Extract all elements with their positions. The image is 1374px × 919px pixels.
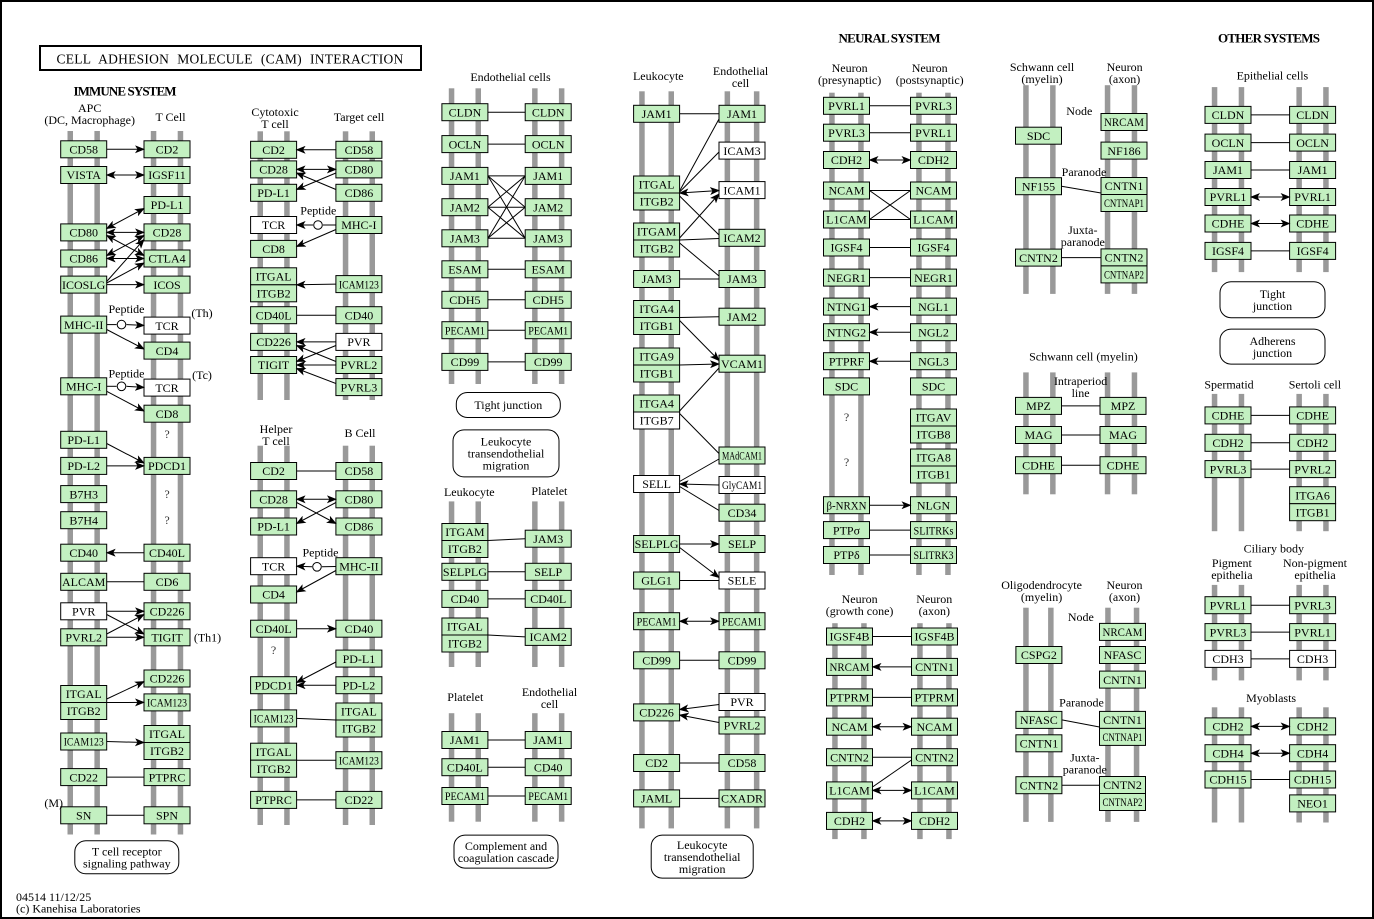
svg-text:CDH2: CDH2 [831, 153, 862, 167]
svg-text:ITGB1: ITGB1 [640, 367, 674, 381]
svg-text:(Th1): (Th1) [194, 631, 221, 645]
svg-text:CDH2: CDH2 [834, 814, 865, 828]
svg-text:CNTN2: CNTN2 [830, 750, 869, 764]
svg-text:PECAM1: PECAM1 [445, 789, 485, 803]
svg-text:ITGB1: ITGB1 [917, 468, 951, 482]
svg-text:Paranode: Paranode [1062, 165, 1107, 179]
svg-text:ITGAL: ITGAL [341, 705, 377, 719]
svg-text:NLGN: NLGN [917, 498, 951, 512]
svg-text:PVR: PVR [347, 335, 370, 349]
svg-text:ITGB2: ITGB2 [257, 762, 291, 776]
svg-text:ALCAM: ALCAM [62, 575, 106, 589]
svg-text:JAM1: JAM1 [450, 169, 480, 183]
svg-text:T cell: T cell [261, 117, 289, 131]
svg-text:paranode: paranode [1061, 235, 1105, 249]
svg-text:CNTN1: CNTN1 [1020, 737, 1059, 751]
svg-text:CD2: CD2 [156, 143, 179, 157]
svg-text:L1CAM: L1CAM [829, 784, 870, 798]
svg-text:Peptide: Peptide [109, 367, 145, 381]
svg-text:PECAM1: PECAM1 [528, 323, 568, 337]
svg-text:CD22: CD22 [69, 770, 98, 784]
svg-text:ITGB2: ITGB2 [640, 242, 674, 256]
svg-text:JAM1: JAM1 [450, 733, 480, 747]
svg-text:CNTN2: CNTN2 [1019, 251, 1058, 265]
svg-text:CNTN2: CNTN2 [915, 750, 954, 764]
svg-text:CD99: CD99 [642, 654, 671, 668]
svg-text:JAM1: JAM1 [642, 107, 672, 121]
svg-text:CDH2: CDH2 [1297, 720, 1328, 734]
svg-text:CDH4: CDH4 [1297, 746, 1328, 760]
svg-text:ITGA4: ITGA4 [639, 397, 674, 411]
svg-text:TIGIT: TIGIT [151, 631, 183, 645]
svg-text:(myelin): (myelin) [1021, 72, 1062, 86]
svg-text:ITGB8: ITGB8 [917, 428, 951, 442]
svg-text:(growth cone): (growth cone) [826, 604, 894, 618]
svg-text:CDH5: CDH5 [449, 293, 480, 307]
svg-text:PD-L1: PD-L1 [67, 433, 100, 447]
svg-text:CDH2: CDH2 [919, 814, 950, 828]
svg-text:SPN: SPN [156, 809, 178, 823]
svg-text:CDH5: CDH5 [533, 293, 564, 307]
svg-text:NRCAM: NRCAM [1104, 115, 1144, 129]
svg-text:CD86: CD86 [69, 252, 98, 266]
svg-text:ITGB2: ITGB2 [640, 195, 674, 209]
svg-text:CNTN2: CNTN2 [1020, 778, 1059, 792]
svg-text:CDH15: CDH15 [1209, 773, 1246, 787]
svg-text:NCAM: NCAM [915, 184, 951, 198]
svg-text:CD58: CD58 [69, 143, 98, 157]
svg-text:PVRL1: PVRL1 [1294, 625, 1331, 639]
svg-text:B7H4: B7H4 [69, 513, 98, 527]
svg-text:Node: Node [1068, 610, 1094, 624]
svg-text:CD80: CD80 [69, 226, 98, 240]
svg-text:CNTN1: CNTN1 [915, 660, 954, 674]
svg-text:ICOSLG: ICOSLG [62, 278, 106, 292]
svg-text:NTNG2: NTNG2 [827, 325, 866, 339]
svg-text:Platelet: Platelet [447, 690, 484, 704]
svg-text:CNTNAP2: CNTNAP2 [1103, 795, 1143, 809]
svg-text:JAM2: JAM2 [533, 200, 563, 214]
svg-text:PVRL2: PVRL2 [65, 631, 102, 645]
svg-text:CD40L: CD40L [149, 546, 185, 560]
svg-text:(axon): (axon) [1109, 590, 1140, 604]
svg-text:SDC: SDC [922, 380, 945, 394]
svg-text:L1CAM: L1CAM [826, 213, 867, 227]
svg-text:PTPσ: PTPσ [833, 523, 861, 537]
svg-text:NRCAM: NRCAM [1103, 625, 1143, 639]
svg-text:CD86: CD86 [345, 186, 374, 200]
svg-text:JAML: JAML [641, 792, 672, 806]
svg-text:NF155: NF155 [1022, 179, 1055, 193]
svg-text:IGSF4B: IGSF4B [915, 630, 955, 644]
svg-text:ITGAL: ITGAL [447, 620, 483, 634]
svg-text:L1CAM: L1CAM [913, 213, 954, 227]
svg-text:ICAM1: ICAM1 [723, 183, 760, 197]
svg-text:JAM3: JAM3 [727, 272, 757, 286]
svg-text:(c) Kanehisa Laboratories: (c) Kanehisa Laboratories [16, 902, 141, 916]
svg-text:?: ? [844, 455, 849, 469]
svg-text:CD86: CD86 [345, 520, 374, 534]
svg-text:NCAM: NCAM [831, 720, 867, 734]
svg-text:SLITRK3: SLITRK3 [914, 548, 954, 562]
svg-text:cell: cell [541, 697, 559, 711]
svg-text:CDH4: CDH4 [1212, 746, 1243, 760]
svg-text:SELP: SELP [534, 565, 562, 579]
svg-text:coagulation cascade: coagulation cascade [458, 851, 554, 865]
svg-text:TCR: TCR [155, 319, 178, 333]
svg-text:Platelet: Platelet [531, 484, 568, 498]
svg-text:CD40: CD40 [69, 546, 98, 560]
svg-text:OTHER SYSTEMS: OTHER SYSTEMS [1218, 31, 1320, 46]
svg-text:PVRL1: PVRL1 [915, 126, 952, 140]
svg-text:PVRL2: PVRL2 [341, 358, 378, 372]
svg-text:migration: migration [679, 862, 726, 876]
svg-text:CD6: CD6 [156, 575, 179, 589]
svg-text:(M): (M) [44, 796, 63, 810]
svg-text:PTPRM: PTPRM [830, 691, 870, 705]
svg-text:junction: junction [1252, 299, 1292, 313]
svg-text:ICAM123: ICAM123 [147, 696, 187, 710]
svg-text:Endothelial cells: Endothelial cells [470, 70, 551, 84]
svg-text:SDC: SDC [835, 380, 858, 394]
svg-text:PD-L1: PD-L1 [257, 186, 290, 200]
svg-text:ITGAL: ITGAL [256, 270, 292, 284]
svg-text:?: ? [164, 487, 169, 501]
svg-text:NEO1: NEO1 [1297, 797, 1328, 811]
svg-text:CD226: CD226 [256, 335, 291, 349]
svg-text:CD2: CD2 [645, 756, 668, 770]
svg-text:TCR: TCR [262, 559, 285, 573]
svg-text:PVRL3: PVRL3 [915, 99, 952, 113]
svg-text:SELPLG: SELPLG [635, 537, 679, 551]
svg-text:PVRL3: PVRL3 [341, 380, 378, 394]
svg-text:CD28: CD28 [153, 226, 182, 240]
svg-text:Leukocyte: Leukocyte [633, 69, 684, 83]
svg-text:NGL1: NGL1 [918, 300, 949, 314]
svg-text:CDH2: CDH2 [1297, 436, 1328, 450]
svg-text:Spermatid: Spermatid [1204, 378, 1253, 392]
svg-text:PVRL2: PVRL2 [1294, 462, 1331, 476]
svg-text:CD40L: CD40L [530, 592, 566, 606]
svg-text:CD40: CD40 [451, 592, 480, 606]
svg-text:(axon): (axon) [1109, 72, 1140, 86]
svg-text:NCAM: NCAM [828, 184, 864, 198]
svg-text:PVRL3: PVRL3 [1294, 598, 1331, 612]
svg-text:epithelia: epithelia [1211, 568, 1253, 582]
svg-text:NCAM: NCAM [916, 720, 952, 734]
svg-text:(axon): (axon) [919, 604, 950, 618]
svg-text:PVRL3: PVRL3 [828, 126, 865, 140]
svg-text:CNTNAP2: CNTNAP2 [1104, 268, 1144, 282]
svg-text:JAM3: JAM3 [450, 232, 480, 246]
svg-text:ESAM: ESAM [448, 263, 482, 277]
svg-text:Target cell: Target cell [334, 110, 385, 124]
svg-text:ICAM2: ICAM2 [723, 231, 760, 245]
svg-text:CD40: CD40 [345, 308, 374, 322]
svg-text:NEURAL SYSTEM: NEURAL SYSTEM [839, 31, 941, 46]
svg-text:(myelin): (myelin) [1021, 590, 1062, 604]
svg-text:CD40L: CD40L [256, 308, 292, 322]
svg-text:CDH3: CDH3 [1212, 652, 1243, 666]
svg-text:CD80: CD80 [345, 493, 374, 507]
svg-text:SDC: SDC [1027, 129, 1050, 143]
svg-text:GLG1: GLG1 [641, 574, 672, 588]
svg-text:CD99: CD99 [534, 355, 563, 369]
svg-text:CDHE: CDHE [1212, 409, 1245, 423]
svg-text:Peptide: Peptide [303, 545, 339, 559]
svg-text:CD22: CD22 [345, 793, 374, 807]
svg-text:(postsynaptic): (postsynaptic) [896, 73, 964, 87]
svg-text:OCLN: OCLN [1212, 136, 1245, 150]
svg-text:CNTNAP1: CNTNAP1 [1103, 730, 1143, 744]
svg-text:CXADR: CXADR [721, 792, 763, 806]
svg-text:Ciliary body: Ciliary body [1244, 542, 1304, 556]
svg-text:PVRL1: PVRL1 [1210, 598, 1247, 612]
svg-text:PD-L1: PD-L1 [257, 520, 290, 534]
svg-text:CDH2: CDH2 [1212, 720, 1243, 734]
svg-text:CLDN: CLDN [449, 105, 482, 119]
svg-text:CD226: CD226 [150, 672, 185, 686]
svg-text:IGSF4: IGSF4 [1212, 244, 1244, 258]
svg-text:CD226: CD226 [150, 605, 185, 619]
svg-text:CD2: CD2 [262, 143, 285, 157]
svg-text:CDHE: CDHE [1296, 409, 1329, 423]
svg-text:CNTNAP1: CNTNAP1 [1104, 196, 1144, 210]
svg-text:CNTN1: CNTN1 [1103, 713, 1142, 727]
svg-text:Sertoli cell: Sertoli cell [1289, 378, 1342, 392]
svg-text:IGSF4: IGSF4 [830, 241, 862, 255]
svg-text:PECAM1: PECAM1 [722, 614, 762, 628]
svg-text:ITGAL: ITGAL [256, 745, 292, 759]
svg-text:ICAM3: ICAM3 [723, 144, 760, 158]
svg-text:ITGA4: ITGA4 [639, 302, 674, 316]
svg-text:OCLN: OCLN [449, 137, 482, 151]
svg-text:PTPRC: PTPRC [149, 770, 186, 784]
svg-text:PECAM1: PECAM1 [445, 323, 485, 337]
svg-text:ITGB7: ITGB7 [640, 414, 674, 428]
svg-text:PD-L1: PD-L1 [151, 198, 184, 212]
svg-text:CDHE: CDHE [1107, 458, 1140, 472]
svg-text:SELL: SELL [642, 477, 671, 491]
svg-text:PTPRF: PTPRF [829, 354, 865, 368]
svg-text:L1CAM: L1CAM [914, 784, 955, 798]
svg-text:ITGAL: ITGAL [639, 178, 675, 192]
svg-text:IGSF4: IGSF4 [917, 241, 949, 255]
svg-text:PTPRM: PTPRM [915, 691, 955, 705]
svg-text:JAM1: JAM1 [533, 733, 563, 747]
svg-text:line: line [1072, 386, 1090, 400]
svg-text:JAM3: JAM3 [533, 232, 563, 246]
svg-text:PD-L1: PD-L1 [343, 652, 376, 666]
svg-text:IGSF11: IGSF11 [148, 168, 186, 182]
svg-text:CD58: CD58 [345, 143, 374, 157]
svg-text:CD99: CD99 [451, 355, 480, 369]
svg-text:PECAM1: PECAM1 [528, 789, 568, 803]
svg-text:PVRL3: PVRL3 [1210, 625, 1247, 639]
svg-text:ITGAM: ITGAM [445, 525, 485, 539]
svg-text:ICOS: ICOS [153, 278, 180, 292]
svg-text:IGSF4B: IGSF4B [830, 630, 870, 644]
svg-text:β-NRXN: β-NRXN [827, 498, 867, 512]
svg-text:ICAM2: ICAM2 [530, 630, 567, 644]
svg-text:JAM2: JAM2 [727, 310, 757, 324]
svg-text:?: ? [164, 513, 169, 527]
svg-text:OCLN: OCLN [1296, 136, 1329, 150]
svg-text:GlyCAM1: GlyCAM1 [722, 478, 762, 492]
svg-text:PD-L2: PD-L2 [343, 678, 376, 692]
svg-text:CD99: CD99 [728, 654, 757, 668]
svg-text:PVRL3: PVRL3 [1210, 462, 1247, 476]
svg-text:Myoblasts: Myoblasts [1246, 691, 1296, 705]
svg-text:CD80: CD80 [345, 163, 374, 177]
svg-text:NGL2: NGL2 [918, 325, 949, 339]
svg-text:PTPδ: PTPδ [833, 548, 860, 562]
svg-text:CNTN1: CNTN1 [1105, 179, 1144, 193]
svg-text:CDH3: CDH3 [1297, 652, 1328, 666]
svg-text:PTPRC: PTPRC [255, 793, 292, 807]
svg-text:CNTN2: CNTN2 [1105, 251, 1144, 265]
svg-text:CDH15: CDH15 [1294, 773, 1331, 787]
svg-text:CTLA4: CTLA4 [148, 252, 185, 266]
svg-text:PVR: PVR [730, 695, 753, 709]
svg-text:CD8: CD8 [262, 242, 285, 256]
svg-text:MPZ: MPZ [1111, 399, 1136, 413]
svg-text:PVRL1: PVRL1 [1210, 190, 1247, 204]
svg-text:CD40: CD40 [345, 622, 374, 636]
svg-text:CD226: CD226 [639, 706, 674, 720]
svg-text:CD28: CD28 [259, 163, 288, 177]
svg-text:CSPG2: CSPG2 [1021, 648, 1057, 662]
svg-text:?: ? [844, 410, 849, 424]
svg-text:NEGR1: NEGR1 [827, 271, 866, 285]
svg-text:CD4: CD4 [156, 344, 179, 358]
svg-text:Peptide: Peptide [300, 204, 336, 218]
svg-text:(Tc): (Tc) [192, 368, 212, 382]
svg-text:ITGB2: ITGB2 [448, 637, 482, 651]
svg-text:junction: junction [1252, 346, 1292, 360]
svg-text:CDH2: CDH2 [1212, 436, 1243, 450]
svg-text:CD58: CD58 [728, 756, 757, 770]
svg-text:Paranode: Paranode [1059, 696, 1104, 710]
svg-text:CLDN: CLDN [1296, 108, 1329, 122]
svg-text:PD-L2: PD-L2 [67, 459, 100, 473]
svg-text:PDCD1: PDCD1 [255, 678, 293, 692]
svg-text:epithelia: epithelia [1294, 568, 1336, 582]
svg-text:ICAM123: ICAM123 [339, 277, 379, 291]
svg-text:NEGR1: NEGR1 [914, 271, 953, 285]
svg-text:Epithelial cells: Epithelial cells [1237, 69, 1309, 83]
svg-text:MAdCAM1: MAdCAM1 [722, 449, 762, 463]
svg-text:JAM1: JAM1 [533, 169, 563, 183]
svg-text:CD4: CD4 [262, 588, 285, 602]
svg-text:CDH2: CDH2 [918, 153, 949, 167]
svg-text:SELE: SELE [728, 574, 757, 588]
svg-text:cell: cell [732, 76, 750, 90]
svg-text:JAM1: JAM1 [1298, 163, 1328, 177]
svg-text:CD8: CD8 [156, 407, 179, 421]
svg-text:NF186: NF186 [1107, 144, 1140, 158]
svg-text:CD40L: CD40L [447, 760, 483, 774]
svg-text:JAM3: JAM3 [642, 272, 672, 286]
svg-text:ITGA6: ITGA6 [1295, 488, 1330, 502]
svg-text:CLDN: CLDN [532, 105, 565, 119]
svg-text:CD40: CD40 [534, 760, 563, 774]
svg-text:CNTN1: CNTN1 [1103, 673, 1142, 687]
svg-text:CD2: CD2 [262, 464, 285, 478]
svg-text:JAM2: JAM2 [450, 200, 480, 214]
svg-text:PVR: PVR [72, 605, 95, 619]
svg-text:ICAM123: ICAM123 [254, 712, 294, 726]
svg-text:OCLN: OCLN [532, 137, 565, 151]
svg-text:ITGB1: ITGB1 [1296, 505, 1330, 519]
svg-text:SELP: SELP [728, 537, 756, 551]
svg-text:NRCAM: NRCAM [830, 660, 870, 674]
svg-text:PECAM1: PECAM1 [637, 614, 677, 628]
svg-text:ITGB2: ITGB2 [342, 722, 376, 736]
svg-text:SELPLG: SELPLG [443, 565, 487, 579]
svg-text:migration: migration [483, 459, 530, 473]
svg-text:ITGAV: ITGAV [916, 411, 952, 425]
svg-text:ITGB1: ITGB1 [640, 319, 674, 333]
svg-text:CELL ADHESION MOLECULE (CAM: CELL ADHESION MOLECULE (CAM) INTERACTION [57, 52, 404, 67]
svg-text:SN: SN [76, 809, 92, 823]
svg-text:TCR: TCR [155, 381, 178, 395]
svg-text:B Cell: B Cell [344, 426, 376, 440]
svg-text:ITGB2: ITGB2 [67, 704, 101, 718]
svg-text:Peptide: Peptide [109, 302, 145, 316]
svg-text:?: ? [271, 643, 276, 657]
svg-text:ITGA9: ITGA9 [639, 350, 674, 364]
svg-text:ITGAM: ITGAM [637, 225, 677, 239]
svg-text:ITGB2: ITGB2 [257, 287, 291, 301]
svg-text:Tight junction: Tight junction [474, 398, 542, 412]
svg-text:PVRL1: PVRL1 [1294, 190, 1331, 204]
svg-text:signaling pathway: signaling pathway [83, 857, 171, 871]
svg-text:JAM1: JAM1 [1213, 163, 1243, 177]
svg-text:Node: Node [1066, 104, 1092, 118]
svg-text:SLITRKs: SLITRKs [914, 523, 954, 537]
svg-text:ESAM: ESAM [532, 263, 566, 277]
svg-text:IMMUNE SYSTEM: IMMUNE SYSTEM [74, 84, 177, 99]
svg-text:NTNG1: NTNG1 [827, 300, 866, 314]
svg-text:ITGB2: ITGB2 [150, 744, 184, 758]
svg-text:(DC, Macrophage): (DC, Macrophage) [44, 113, 135, 127]
svg-text:NGL3: NGL3 [918, 354, 949, 368]
svg-text:MAG: MAG [1109, 428, 1137, 442]
svg-text:MPZ: MPZ [1026, 399, 1051, 413]
svg-text:ITGAL: ITGAL [66, 687, 102, 701]
svg-text:CD40L: CD40L [256, 622, 292, 636]
svg-text:VISTA: VISTA [67, 168, 102, 182]
svg-text:ITGAL: ITGAL [149, 727, 185, 741]
svg-text:?: ? [164, 427, 169, 441]
svg-text:CNTN2: CNTN2 [1103, 778, 1142, 792]
svg-text:NFASC: NFASC [1020, 713, 1058, 727]
svg-text:CD58: CD58 [345, 464, 374, 478]
svg-text:IGSF4: IGSF4 [1297, 244, 1329, 258]
svg-text:CLDN: CLDN [1212, 108, 1245, 122]
svg-text:ICAM123: ICAM123 [339, 753, 379, 767]
svg-text:Leukocyte: Leukocyte [444, 485, 495, 499]
svg-text:TCR: TCR [262, 218, 285, 232]
svg-text:(presynaptic): (presynaptic) [818, 73, 881, 87]
svg-text:CD28: CD28 [259, 493, 288, 507]
svg-text:Schwann cell (myelin): Schwann cell (myelin) [1029, 350, 1138, 364]
svg-text:ICAM123: ICAM123 [64, 735, 104, 749]
svg-text:CDHE: CDHE [1022, 458, 1055, 472]
svg-text:MHC-II: MHC-II [64, 318, 103, 332]
svg-text:CDHE: CDHE [1212, 217, 1245, 231]
